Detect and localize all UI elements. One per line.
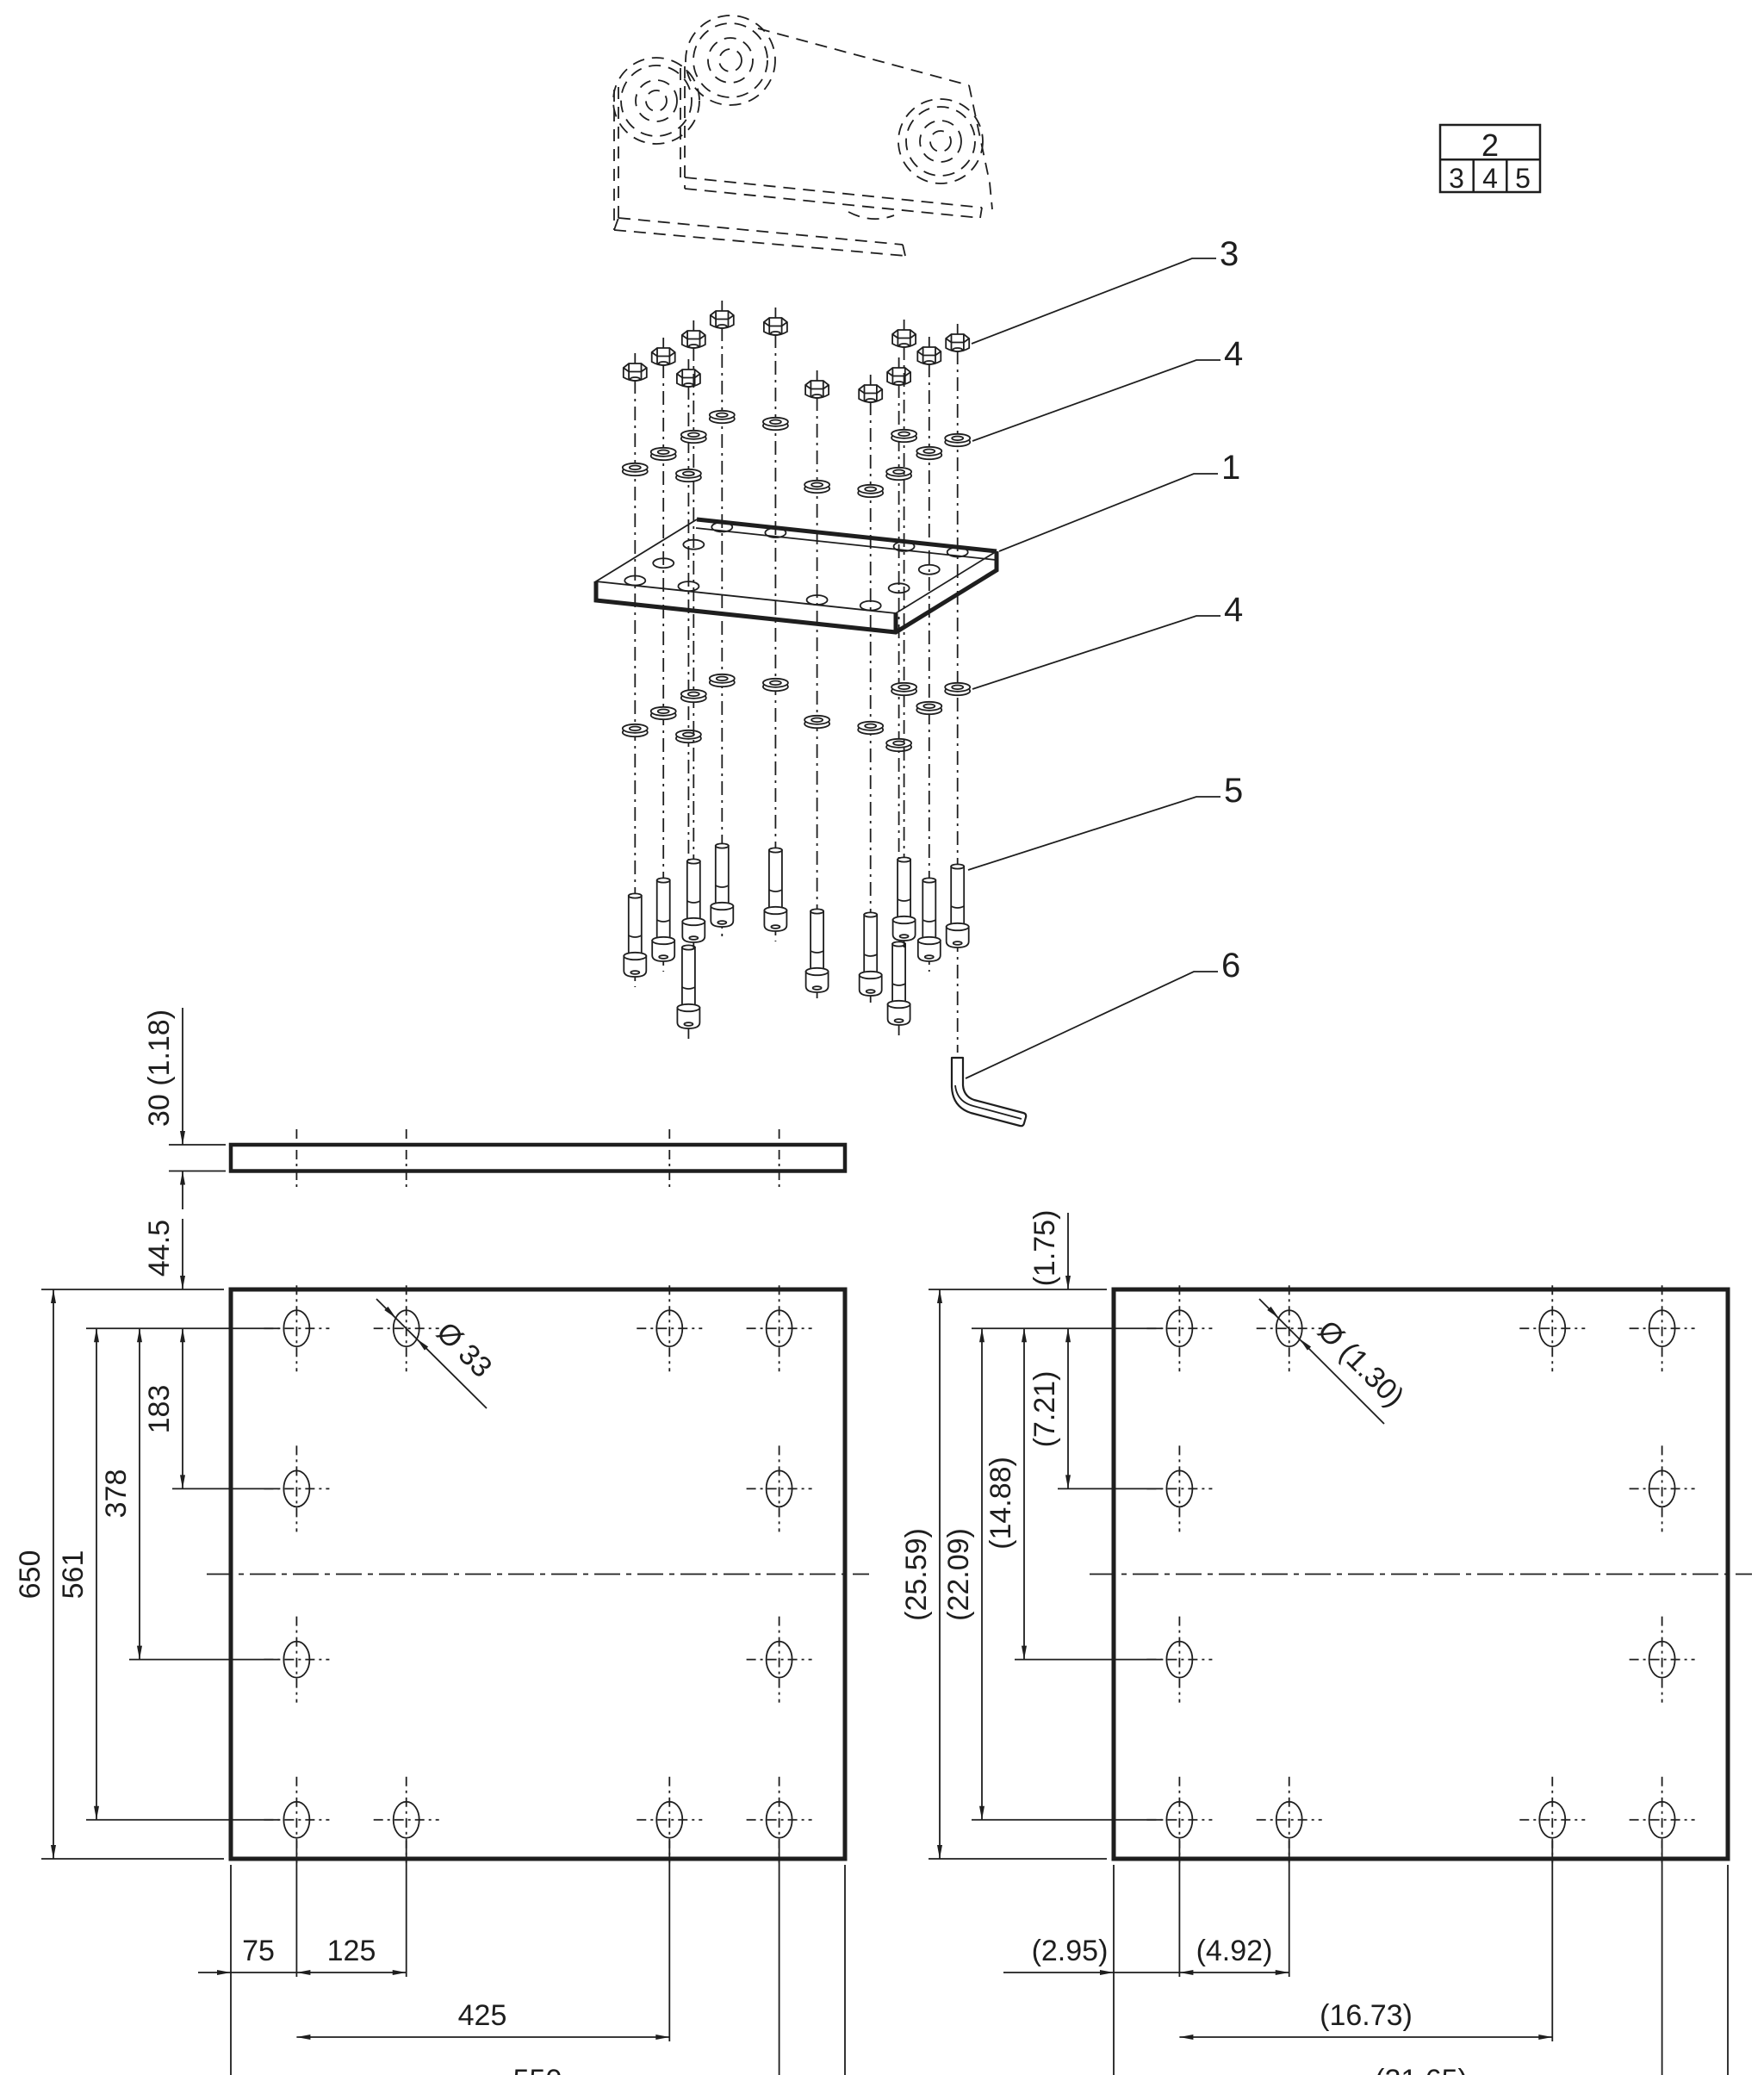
- dim-hole-dia-metric: Ø 33: [430, 1316, 498, 1384]
- dim-col-16-73: (16.73): [1320, 1999, 1413, 2032]
- dim-row-561: 561: [57, 1550, 90, 1600]
- orthographic-views: [41, 1008, 1752, 2075]
- callout-leaders: [966, 258, 1221, 1078]
- callout-washer-upper-label: 4: [1224, 335, 1243, 373]
- legend-table: 2 3 4 5: [1440, 125, 1540, 194]
- dim-row-14-88: (14.88): [984, 1457, 1017, 1550]
- dim-col-75: 75: [242, 1935, 275, 1967]
- dim-height-650: 650: [14, 1550, 47, 1600]
- dim-col-2-95: (2.95): [1032, 1935, 1109, 1967]
- dim-hole-dia-inch: Ø (1.30): [1311, 1314, 1410, 1413]
- legend-cell-5: 5: [1515, 163, 1531, 194]
- machine-bracket-ghost: [613, 16, 992, 256]
- callout-washer-lower-label: 4: [1224, 591, 1243, 629]
- dim-col-550: 550: [513, 2064, 562, 2075]
- dim-height-25-59: (25.59): [900, 1528, 933, 1621]
- legend-parent-item: 2: [1481, 127, 1499, 163]
- callout-nut-label: 3: [1220, 235, 1239, 273]
- fastener-stacks: [623, 301, 970, 1053]
- callout-screw-label: 5: [1224, 772, 1243, 810]
- legend-cell-4: 4: [1482, 163, 1498, 194]
- drawing-sheet: 2 3 4 5 3 4 1 4 5 6 30 (1.18) 44.5 183 3…: [0, 0, 1764, 2075]
- dim-row-22-09: (22.09): [942, 1528, 975, 1621]
- dim-row-183: 183: [143, 1385, 176, 1434]
- dim-col-125: 125: [327, 1935, 376, 1967]
- callout-plate-label: 1: [1221, 449, 1240, 487]
- dim-row-7-21: (7.21): [1028, 1371, 1061, 1448]
- dim-col-4-92: (4.92): [1196, 1935, 1273, 1967]
- callout-hex-key-label: 6: [1221, 947, 1240, 985]
- adapter-plate-iso: [596, 519, 997, 632]
- dim-top-offset-inch: (1.75): [1028, 1210, 1061, 1287]
- dim-top-offset-metric: 44.5: [143, 1220, 176, 1277]
- exploded-assembly-technical-drawing: 2 3 4 5 3 4 1 4 5 6 30 (1.18) 44.5 183 3…: [0, 0, 1764, 2075]
- legend-cell-3: 3: [1449, 163, 1464, 194]
- dim-col-425: 425: [458, 1999, 507, 2032]
- dim-col-21-65: (21.65): [1375, 2064, 1468, 2075]
- dim-row-378: 378: [100, 1469, 133, 1519]
- dim-thickness-metric: 30 (1.18): [143, 1010, 176, 1127]
